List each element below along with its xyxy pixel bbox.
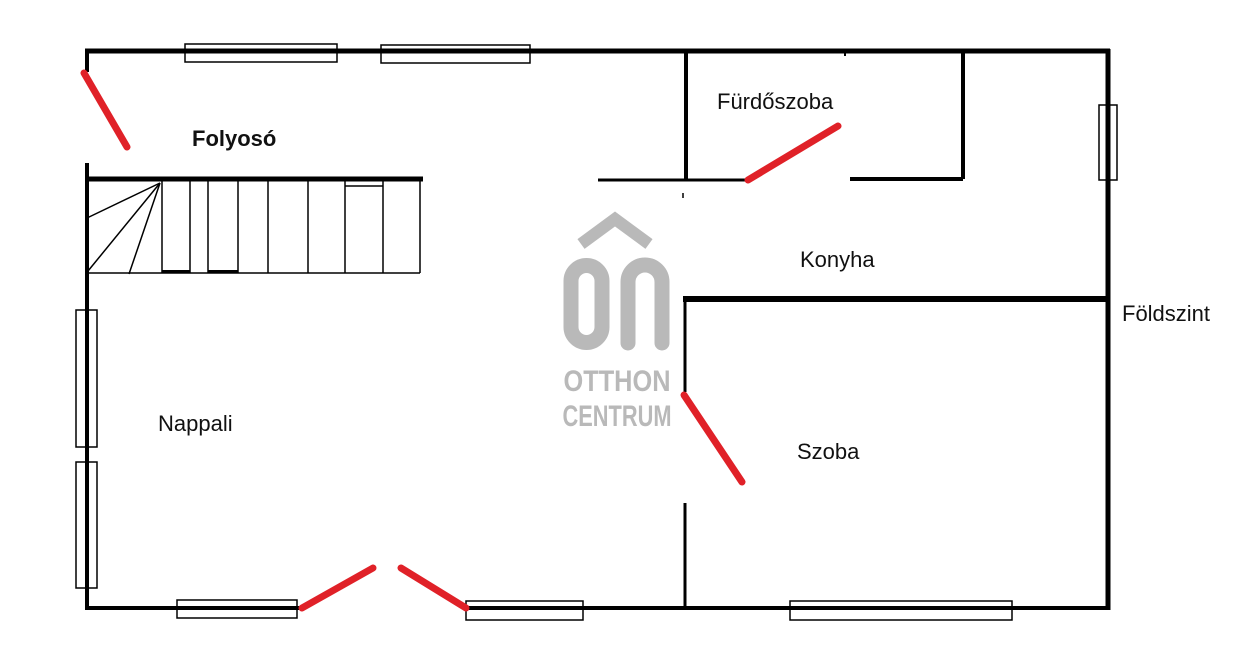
door-swing-terrace-right — [401, 568, 466, 608]
door-swing-entrance — [84, 73, 127, 147]
watermark-line2: CENTRUM — [563, 400, 672, 433]
door-swings — [84, 73, 838, 608]
room-label-furdoszoba: Fürdőszoba — [717, 91, 833, 113]
otthon-centrum-watermark: OTTHON CENTRUM — [563, 219, 672, 433]
watermark-line1: OTTHON — [564, 365, 671, 398]
room-label-folyoso: Folyosó — [192, 128, 276, 150]
door-swing-room — [684, 395, 742, 482]
room-label-konyha: Konyha — [800, 249, 875, 271]
window-bottom-3 — [790, 601, 1012, 620]
floor-label: Földszint — [1122, 303, 1210, 325]
stair-winder-line — [88, 183, 160, 271]
door-swing-terrace-left — [302, 568, 373, 608]
roof-chevron-icon — [581, 219, 649, 244]
door-swing-bathroom — [748, 126, 838, 180]
oc-monogram-icon — [571, 265, 662, 343]
stair-winder-line — [129, 183, 160, 274]
stair-winder-line — [87, 183, 160, 218]
window-top-2 — [381, 45, 530, 63]
floorplan-drawing: OTTHON CENTRUM — [0, 0, 1235, 645]
stairs — [87, 179, 420, 274]
window-bottom-2 — [466, 601, 583, 620]
floorplan-canvas: OTTHON CENTRUM — [0, 0, 1235, 645]
room-label-szoba: Szoba — [797, 441, 859, 463]
room-label-nappali: Nappali — [158, 413, 233, 435]
